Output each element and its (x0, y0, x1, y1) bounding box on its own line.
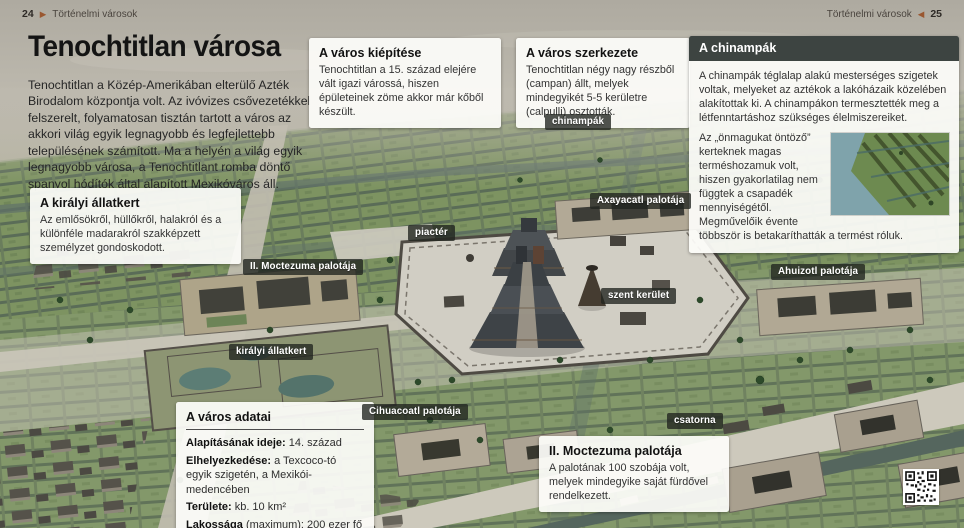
infobox-body: A palotának 100 szobája volt, melyek min… (549, 461, 719, 503)
map-label-axayacatl-palace: Axayacatl palotája (590, 193, 691, 209)
infobox-title: A város szerkezete (526, 46, 680, 60)
fact-row: Lakossága (maximum): 200 ezer fő (186, 518, 364, 528)
series-title: Történelmi városok (52, 9, 137, 20)
arrow-left-icon: ◀ (918, 10, 925, 19)
map-label-ahuizotl-palace: Ahuizotl palotája (771, 264, 865, 280)
infobox-body: Tenochtitlan négy nagy részből (campan) … (526, 63, 680, 119)
page-header-right: Történelmi városok ◀ 25 (827, 8, 942, 20)
infobox-body: Az emlősökről, hüllőkről, halakról és a … (40, 213, 231, 255)
map-label-sacred-precinct: szent kerület (601, 288, 676, 304)
fact-row: Területe: kb. 10 km² (186, 500, 364, 515)
page-number-right: 25 (930, 8, 942, 20)
page-number-left: 24 (22, 8, 34, 20)
infobox-title: A város kiépítése (319, 46, 491, 60)
infobox-title: A királyi állatkert (40, 196, 231, 210)
qr-code (903, 469, 939, 505)
infobox-body: Tenochtitlan a 15. század elejére vált i… (319, 63, 491, 119)
infobox-city-construction: A város kiépítése Tenochtitlan a 15. szá… (309, 38, 501, 128)
infobox-royal-zoo: A királyi állatkert Az emlősökről, hüllő… (30, 188, 241, 264)
divider (186, 429, 364, 430)
book-spread: 24 ▶ Történelmi városok Történelmi város… (0, 0, 964, 528)
chinampa-inset-image (831, 133, 949, 215)
infobox-title: II. Moctezuma palotája (549, 444, 719, 458)
series-title: Történelmi városok (827, 9, 912, 20)
fact-row: Alapításának ideje: 14. század (186, 436, 364, 451)
map-label-market-square: piactér (408, 225, 455, 241)
infobox-city-facts: A város adatai Alapításának ideje: 14. s… (176, 402, 374, 528)
infobox-dark-header: A chinampák (689, 36, 959, 61)
page-header-left: 24 ▶ Történelmi városok (22, 8, 137, 20)
map-label-chinampak: chinampák (545, 114, 611, 130)
map-label-canal: csatorna (667, 413, 723, 429)
fact-row: Elhelyezkedése: a Texcoco-tó egyik szige… (186, 454, 364, 498)
infobox-moctezuma-palace: II. Moctezuma palotája A palotának 100 s… (539, 436, 729, 512)
infobox-title: A város adatai (186, 410, 364, 424)
intro-text: Tenochtitlan a Közép-Amerikában elterülő… (28, 77, 324, 192)
map-label-royal-zoo: királyi állatkert (229, 344, 313, 360)
infobox-chinampas: A chinampák A chinampák téglalap alakú m… (689, 36, 959, 253)
map-label-cihuacoatl-palace: Cihuacoatl palotája (362, 404, 468, 420)
infobox-body: A chinampák téglalap alakú mesterséges s… (699, 69, 949, 125)
intro-section: Tenochtitlan városa Tenochtitlan a Közép… (28, 30, 324, 192)
arrow-right-icon: ▶ (40, 10, 47, 19)
map-label-moctezuma-palace: II. Moctezuma palotája (243, 259, 363, 275)
page-title: Tenochtitlan városa (28, 30, 303, 64)
